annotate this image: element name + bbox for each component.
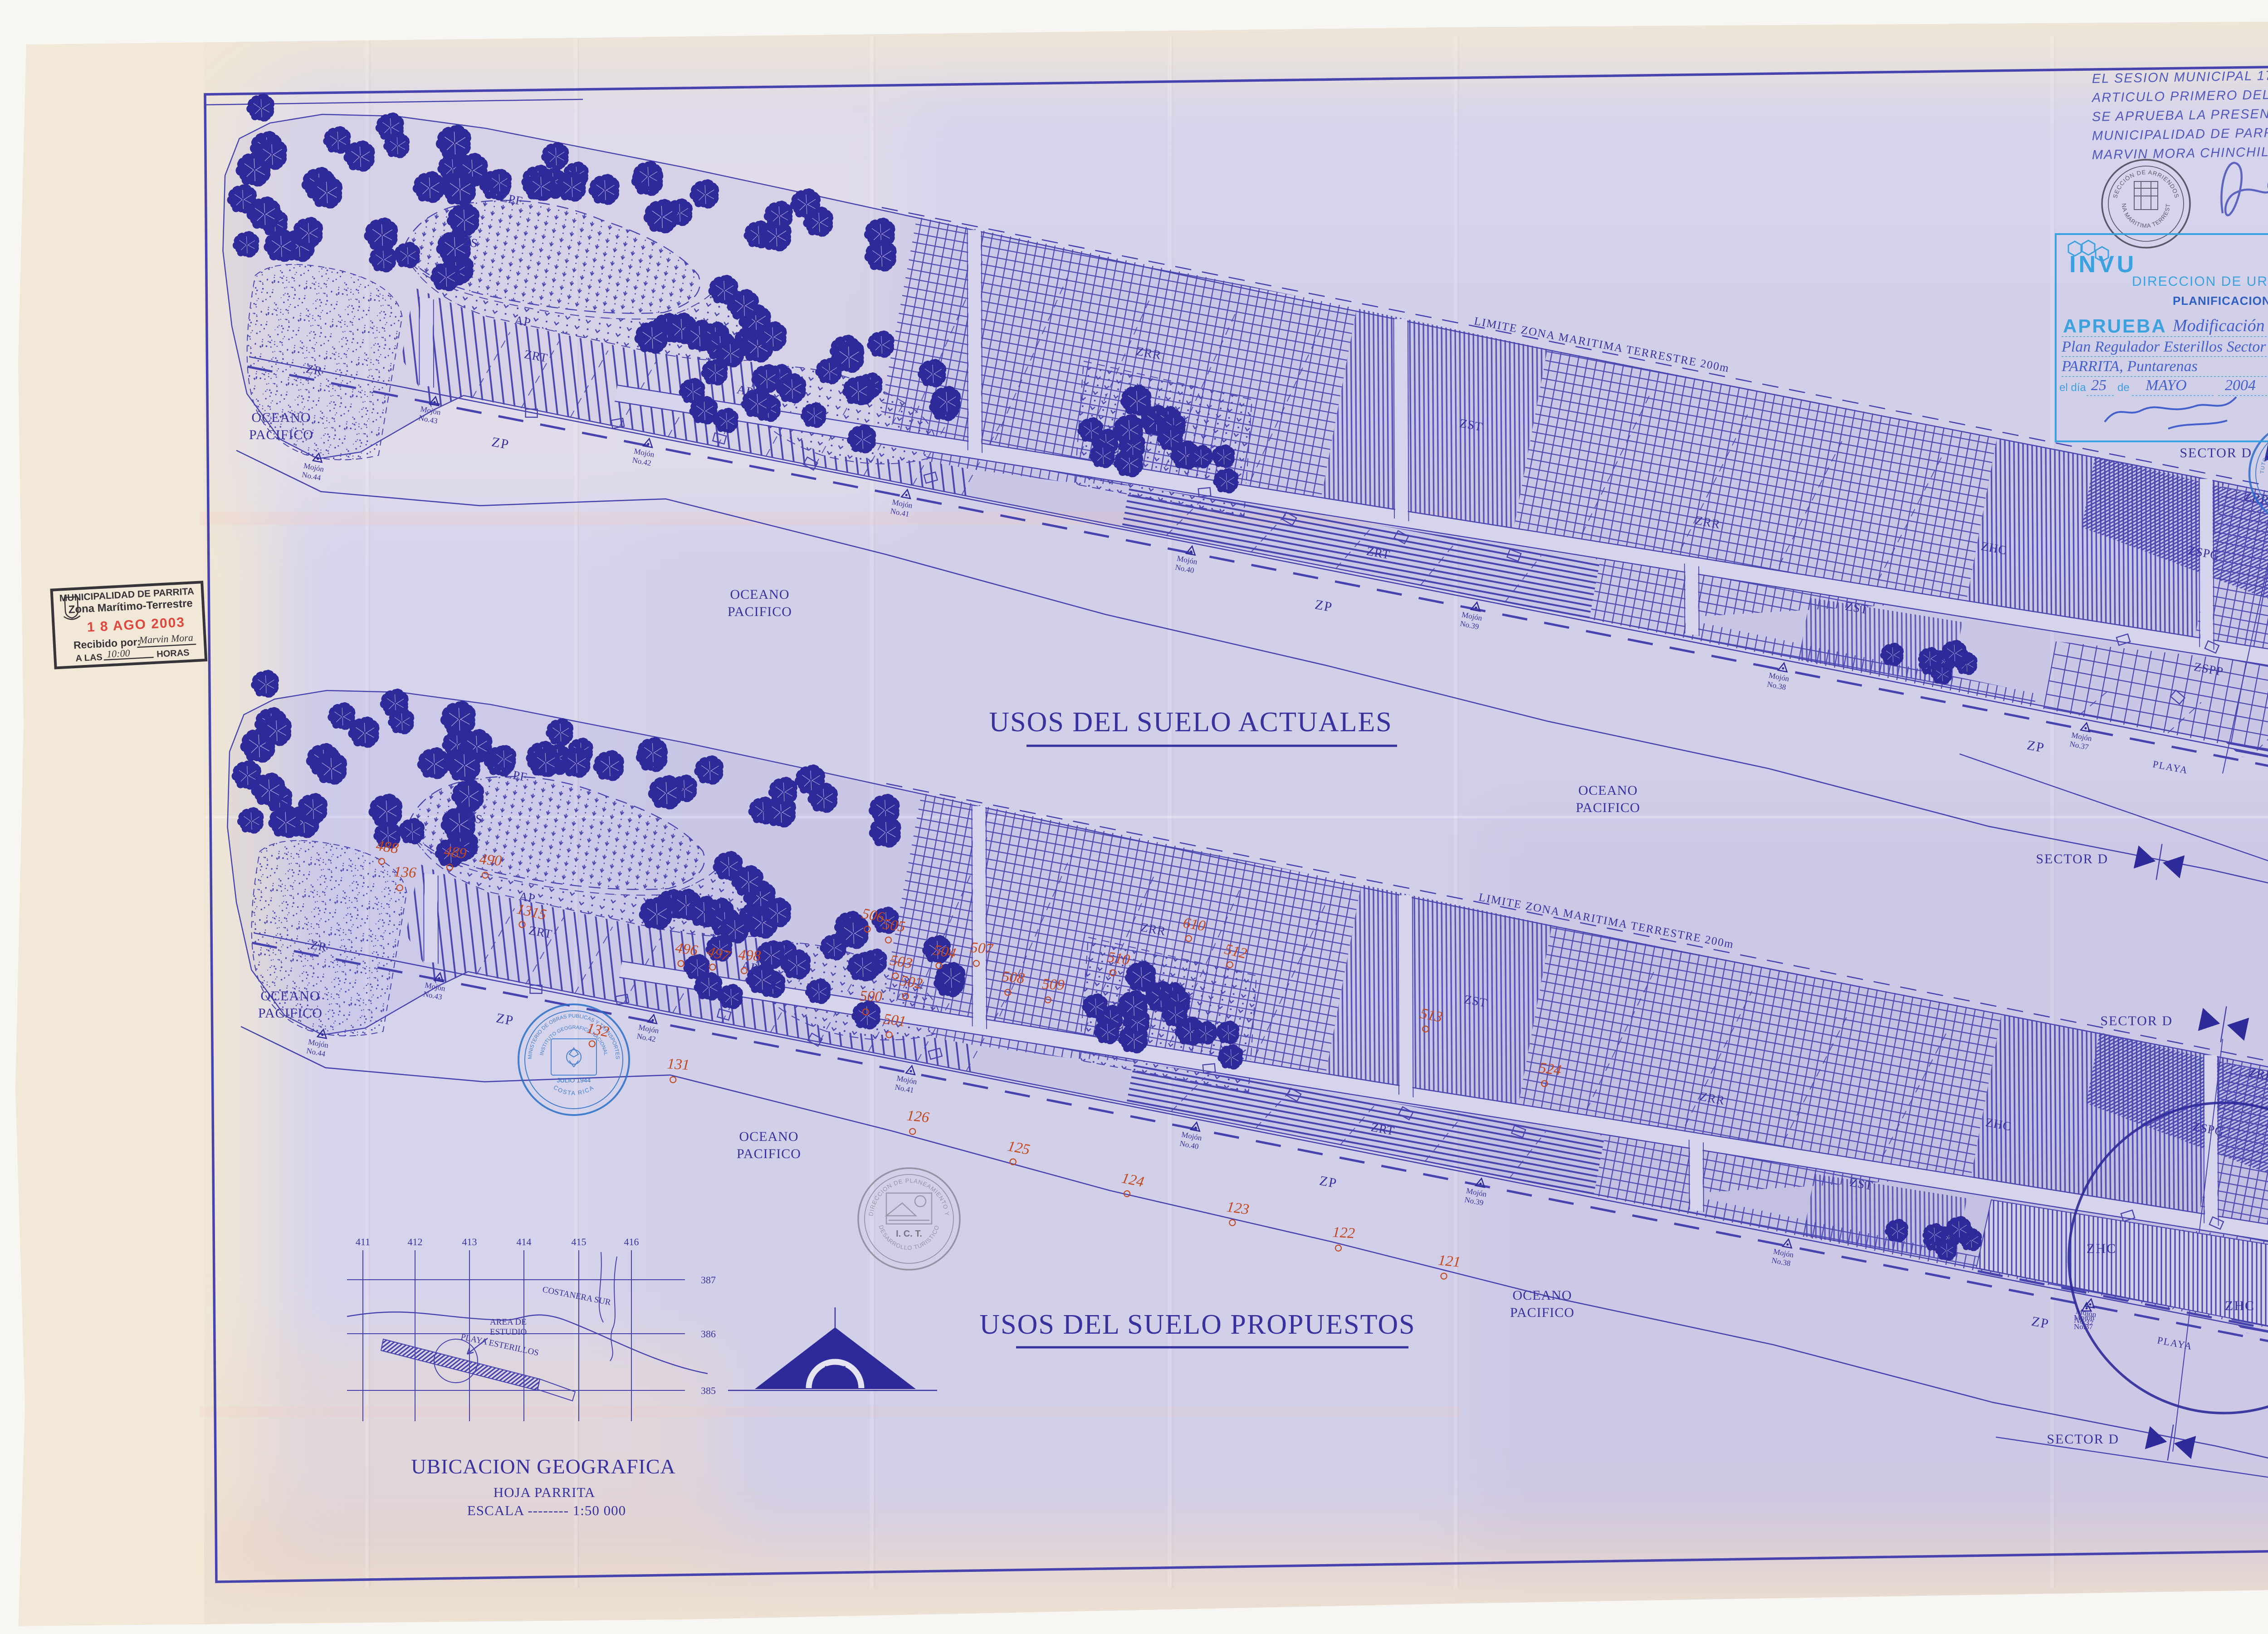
svg-text:136: 136 xyxy=(393,864,417,881)
svg-text:ZHC: ZHC xyxy=(2225,1298,2255,1313)
svg-text:SECTOR D: SECTOR D xyxy=(2036,851,2108,866)
svg-text:524: 524 xyxy=(1538,1060,1562,1079)
svg-text:10:00: 10:00 xyxy=(107,647,131,660)
svg-text:el día: el día xyxy=(2059,382,2086,394)
svg-text:INVU: INVU xyxy=(2069,251,2136,278)
svg-text:ESTUDIO: ESTUDIO xyxy=(490,1327,527,1337)
svg-text:PACIFICO: PACIFICO xyxy=(1576,800,1640,815)
svg-text:123: 123 xyxy=(1226,1199,1250,1218)
svg-text:507: 507 xyxy=(970,939,994,958)
svg-text:490: 490 xyxy=(479,851,503,869)
svg-text:N: N xyxy=(824,1359,846,1393)
svg-text:ZHC: ZHC xyxy=(2087,1241,2116,1256)
svg-text:500: 500 xyxy=(859,988,883,1005)
svg-text:OCEANO: OCEANO xyxy=(261,988,320,1003)
svg-text:OCEANO: OCEANO xyxy=(252,410,311,425)
svg-text:PACIFICO: PACIFICO xyxy=(249,427,313,442)
svg-text:OCEANO: OCEANO xyxy=(1579,783,1638,798)
svg-text:JULIO 1944: JULIO 1944 xyxy=(557,1076,591,1084)
svg-text:de: de xyxy=(2117,382,2130,394)
svg-text:ESCALA -------- 1:50 000: ESCALA -------- 1:50 000 xyxy=(467,1502,626,1518)
svg-text:OCEANO: OCEANO xyxy=(739,1129,799,1144)
svg-text:HORAS: HORAS xyxy=(156,648,190,660)
svg-text:508: 508 xyxy=(1001,969,1025,987)
svg-text:415: 415 xyxy=(572,1236,587,1248)
svg-text:131: 131 xyxy=(667,1056,690,1073)
svg-text:SECTOR D: SECTOR D xyxy=(2180,445,2252,460)
svg-text:USOS DEL SUELO PROPUESTOS: USOS DEL SUELO PROPUESTOS xyxy=(979,1309,1415,1340)
svg-text:USOS DEL SUELO ACTUALES: USOS DEL SUELO ACTUALES xyxy=(989,707,1392,738)
svg-text:PLANIFICACION TERRITORIAL: PLANIFICACION TERRITORIAL xyxy=(2173,294,2268,308)
svg-text:HOJA PARRITA: HOJA PARRITA xyxy=(494,1484,596,1500)
svg-text:MAYO: MAYO xyxy=(2145,377,2187,394)
svg-text:UBICACION GEOGRAFICA: UBICACION GEOGRAFICA xyxy=(411,1455,676,1478)
svg-text:SECTOR D: SECTOR D xyxy=(2047,1432,2119,1447)
svg-text:416: 416 xyxy=(624,1236,639,1248)
svg-text:PACIFICO: PACIFICO xyxy=(258,1006,323,1021)
svg-text:126: 126 xyxy=(906,1107,930,1126)
svg-text:Plan Regulador Esterillos Sect: Plan Regulador Esterillos Sector E xyxy=(2061,338,2268,355)
svg-text:496: 496 xyxy=(674,939,699,959)
svg-text:412: 412 xyxy=(408,1236,423,1248)
svg-text:498: 498 xyxy=(738,947,761,964)
svg-text:PACIFICO: PACIFICO xyxy=(1510,1305,1574,1320)
svg-text:SECTOR D: SECTOR D xyxy=(2100,1013,2173,1028)
svg-text:2004: 2004 xyxy=(2225,377,2256,394)
svg-text:411: 411 xyxy=(356,1236,370,1248)
svg-text:OCEANO: OCEANO xyxy=(1513,1288,1572,1303)
svg-text:414: 414 xyxy=(517,1236,532,1248)
svg-text:PACIFICO: PACIFICO xyxy=(737,1146,801,1161)
svg-text:I. C. T.: I. C. T. xyxy=(896,1229,922,1239)
svg-text:413: 413 xyxy=(462,1236,477,1248)
svg-text:386: 386 xyxy=(701,1328,716,1340)
svg-text:121: 121 xyxy=(1437,1252,1461,1271)
svg-text:385: 385 xyxy=(701,1385,716,1396)
svg-text:OCEANO: OCEANO xyxy=(730,587,790,602)
svg-text:A LAS: A LAS xyxy=(75,652,103,664)
svg-text:AREA DE: AREA DE xyxy=(490,1317,527,1327)
svg-text:489: 489 xyxy=(443,843,467,862)
svg-text:509: 509 xyxy=(1041,976,1065,993)
svg-text:Mojón: Mojón xyxy=(2074,1313,2095,1322)
svg-text:501: 501 xyxy=(882,1011,907,1030)
svg-text:PACIFICO: PACIFICO xyxy=(728,604,792,619)
svg-text:122: 122 xyxy=(1332,1224,1355,1242)
svg-text:Modificación: Modificación xyxy=(2172,316,2265,335)
svg-text:505: 505 xyxy=(882,916,906,935)
svg-text:DIRECCION DE URBANISMO: DIRECCION DE URBANISMO xyxy=(2132,274,2268,289)
svg-text:488: 488 xyxy=(375,837,400,857)
svg-text:25: 25 xyxy=(2091,377,2107,394)
svg-text:APRUEBA: APRUEBA xyxy=(2063,315,2167,337)
svg-text:510: 510 xyxy=(1106,949,1131,969)
svg-text:PARRITA, Puntarenas: PARRITA, Puntarenas xyxy=(2061,358,2198,375)
svg-text:387: 387 xyxy=(701,1274,716,1286)
